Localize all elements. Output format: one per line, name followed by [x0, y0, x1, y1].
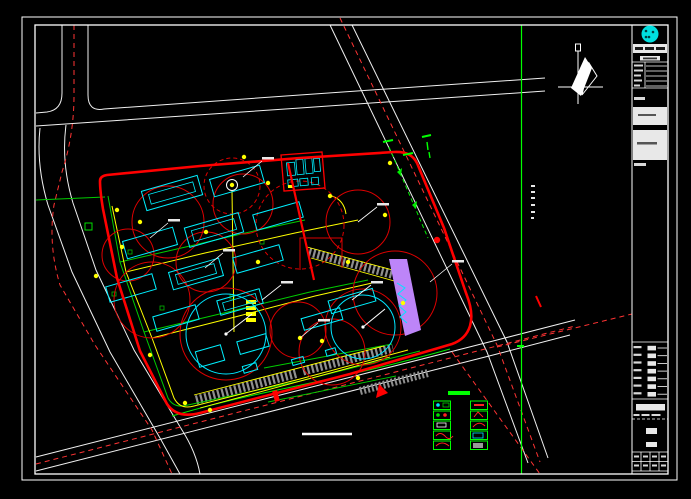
title-block: [632, 26, 668, 472]
north-arrow: [558, 44, 603, 104]
paths-yellow: [112, 191, 408, 408]
hatch-band-purple: [389, 259, 421, 336]
landscape-green: [36, 147, 450, 416]
legend: [434, 391, 488, 450]
redline-marker-green: [383, 25, 524, 474]
road-centerlines: [36, 18, 632, 474]
road-network: [36, 25, 575, 474]
cad-drawing[interactable]: [0, 0, 691, 499]
cad-viewport[interactable]: [0, 0, 691, 499]
